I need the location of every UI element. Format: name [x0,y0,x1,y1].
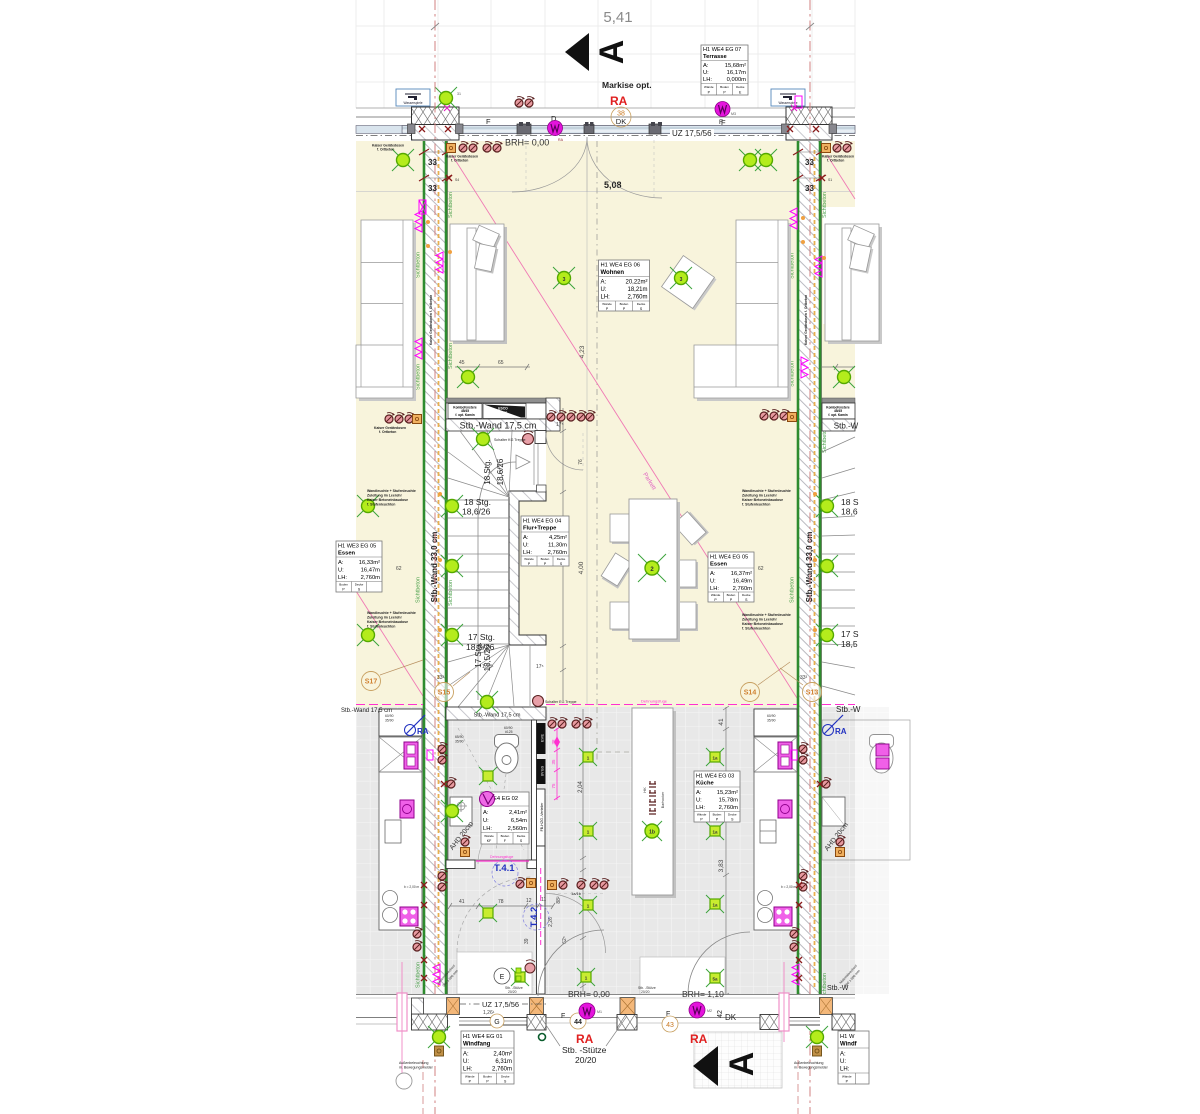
svg-text:Außenbeleuchtung: Außenbeleuchtung [794,1061,823,1065]
svg-text:Wandleuchte + Stufenleuchte: Wandleuchte + Stufenleuchte [742,613,791,617]
svg-text:Stb. -Stütze: Stb. -Stütze [562,1045,607,1055]
svg-text:Boden: Boden [713,813,722,817]
svg-text:20/20: 20/20 [641,990,650,994]
svg-text:Stb.-W: Stb.-W [834,422,859,431]
svg-text:Kaiser Betoneinbaudose: Kaiser Betoneinbaudose [367,498,408,502]
svg-text:Decke: Decke [501,1075,510,1079]
svg-text:G: G [494,1019,499,1026]
svg-text:Wandleuchte + Stufenleuchte: Wandleuchte + Stufenleuchte [742,489,791,493]
svg-text:45: 45 [459,360,465,366]
svg-text:H1 WE4 EG 04: H1 WE4 EG 04 [523,519,561,525]
svg-text:A:: A: [710,571,716,577]
svg-text:DK: DK [725,1013,737,1022]
svg-text:Sichtbeton: Sichtbeton [416,364,422,390]
svg-text:Sichtbeton: Sichtbeton [790,577,796,603]
svg-text:f. Stufenleuchten: f. Stufenleuchten [742,627,770,631]
svg-text:KF: KF [487,839,491,843]
svg-text:39: 39 [524,938,530,944]
svg-text:H1 WE3 EG 05: H1 WE3 EG 05 [338,544,376,550]
svg-text:Zuleitung im Leerohr: Zuleitung im Leerohr [742,618,777,622]
svg-text:2,760m: 2,760m [627,295,647,301]
svg-text:Stb.-W: Stb.-W [827,985,849,992]
svg-text:U:: U: [703,70,709,76]
svg-text:2,04: 2,04 [578,781,584,793]
svg-text:Schalter EG Treppe: Schalter EG Treppe [545,700,577,704]
svg-text:Sichtbeton: Sichtbeton [448,343,454,369]
svg-text:Decke: Decke [355,583,364,587]
svg-text:75: 75 [551,783,556,789]
svg-text:62: 62 [758,566,764,572]
svg-text:2,560m: 2,560m [508,826,528,832]
svg-text:33³: 33³ [800,675,808,681]
svg-text:Wände: Wände [465,1075,475,1079]
svg-text:2,760m: 2,760m [548,550,568,556]
svg-text:U:: U: [338,568,344,574]
svg-text:17 Stg.: 17 Stg. [468,632,495,642]
svg-text:U:: U: [463,1059,469,1065]
svg-text:1b: 1b [649,830,655,836]
svg-text:A:: A: [703,63,709,69]
svg-text:15,68m²: 15,68m² [725,63,746,69]
svg-text:Dehnungsfuge: Dehnungsfuge [490,855,513,859]
svg-text:Decke: Decke [736,85,745,89]
svg-text:2,760m: 2,760m [719,805,739,811]
svg-text:Windf: Windf [840,1042,858,1048]
svg-text:U:: U: [840,1059,846,1065]
svg-text:A: A [723,1052,761,1077]
svg-text:Decke: Decke [742,593,751,597]
svg-text:16,49m: 16,49m [733,579,753,585]
svg-text:18 S: 18 S [841,497,859,507]
svg-text:Boden: Boden [483,1075,492,1079]
svg-text:H1 WE4 EG 03: H1 WE4 EG 03 [696,774,734,780]
svg-text:Kaiser Gerätedosen f. Ortbeton: Kaiser Gerätedosen f. Ortbeton [429,295,433,345]
svg-text:m. Bewegungsmelder: m. Bewegungsmelder [399,1066,434,1070]
svg-text:16,47m: 16,47m [361,568,381,574]
svg-text:BRH= 0,00: BRH= 0,00 [568,989,610,999]
svg-text:Boden: Boden [720,85,729,89]
svg-text:2,26: 2,26 [548,917,554,927]
svg-text:18 Stg.: 18 Stg. [483,459,492,484]
svg-text:31: 31 [457,92,461,96]
svg-text:38: 38 [551,739,556,745]
svg-text:HK: HK [642,787,647,793]
svg-text:65: 65 [498,360,504,366]
svg-text:Wände: Wände [484,834,494,838]
svg-text:T.4.1: T.4.1 [494,863,515,874]
svg-text:Kaiser Gerätedosen f. Ortbeton: Kaiser Gerätedosen f. Ortbeton [804,295,808,345]
svg-text:A:: A: [483,810,489,816]
svg-text:0,000m: 0,000m [727,77,747,83]
svg-text:U:: U: [601,287,607,293]
svg-text:16,37m²: 16,37m² [731,571,752,577]
svg-text:LH:: LH: [696,805,705,811]
svg-text:88²: 88² [556,896,562,904]
svg-text:18,6/26: 18,6/26 [496,458,505,485]
svg-text:Essen: Essen [710,562,728,568]
svg-text:S14: S14 [744,690,757,697]
svg-text:11⁭: 11⁭ [541,897,546,903]
svg-text:Barhocker: Barhocker [661,791,665,808]
svg-text:Schalter KG Treppe: Schalter KG Treppe [494,438,526,442]
svg-text:43: 43 [666,1022,674,1029]
svg-text:2,40m²: 2,40m² [493,1052,512,1058]
svg-text:H1 WE4 EG 06: H1 WE4 EG 06 [601,263,641,269]
svg-text:M1: M1 [597,1010,602,1014]
svg-text:18,5: 18,5 [841,639,858,649]
svg-text:RA: RA [558,138,564,142]
svg-text:44: 44 [574,1019,582,1026]
svg-text:18,6/26: 18,6/26 [462,507,491,517]
svg-text:U:: U: [483,818,489,824]
svg-text:62: 62 [396,566,402,572]
svg-text:20/20: 20/20 [508,990,517,994]
svg-text:60/90: 60/90 [385,714,394,718]
svg-text:33: 33 [805,184,814,193]
svg-text:2,41m²: 2,41m² [509,810,527,816]
svg-text:1a: 1a [712,903,718,908]
svg-text:Sichtbeton: Sichtbeton [822,192,828,218]
svg-text:#125: #125 [505,730,513,734]
svg-text:FB-HZG.-Verteiler: FB-HZG.-Verteiler [540,802,544,832]
svg-text:U:: U: [710,579,716,585]
svg-text:H1 WE4 EG 01: H1 WE4 EG 01 [463,1034,503,1040]
svg-text:LH:: LH: [338,575,347,581]
svg-text:U:: U: [523,543,529,549]
svg-text:F: F [504,839,506,843]
svg-text:Markise opt.: Markise opt. [602,80,652,90]
svg-text:Wände: Wände [602,302,612,306]
svg-text:3: 3 [563,277,566,283]
svg-text:78: 78 [498,899,504,905]
svg-text:Dehnungsfuge: Dehnungsfuge [641,699,668,704]
svg-text:E: E [500,974,505,981]
svg-text:U:: U: [696,798,702,804]
svg-text:S1: S1 [828,178,832,182]
svg-text:LH:: LH: [483,826,492,832]
svg-text:f. Ortbeton: f. Ortbeton [379,430,396,434]
svg-text:Sichtbeton: Sichtbeton [448,580,454,606]
svg-text:H1 WE4 EG 05: H1 WE4 EG 05 [710,555,748,561]
svg-text:33³: 33³ [437,675,445,681]
svg-text:T.4.2: T.4.2 [529,907,540,928]
svg-text:17⁵: 17⁵ [556,422,564,428]
svg-text:6,54m: 6,54m [511,818,527,824]
svg-text:Zuleitung im Leerohr: Zuleitung im Leerohr [367,616,402,620]
svg-text:RA: RA [576,1032,594,1046]
svg-text:4,25m²: 4,25m² [549,535,567,541]
svg-text:S15: S15 [438,690,451,697]
svg-text:Wasserspiele: Wasserspiele [403,101,422,105]
svg-text:A:: A: [696,790,702,796]
svg-text:S17: S17 [365,679,378,686]
svg-text:18,5/26: 18,5/26 [483,644,492,671]
svg-text:F: F [561,1013,565,1020]
svg-text:A:: A: [338,560,344,566]
svg-text:LH:: LH: [523,550,532,556]
svg-text:35/90: 35/90 [455,740,464,744]
svg-text:H1 W: H1 W [840,1034,855,1040]
svg-text:Wände: Wände [711,593,721,597]
svg-text:UZ 17,5/56: UZ 17,5/56 [482,1000,519,1009]
svg-text:LH:: LH: [710,586,719,592]
svg-text:f. Stufenleuchten: f. Stufenleuchten [367,625,395,629]
svg-text:17 S: 17 S [841,629,859,639]
svg-text:Wände: Wände [524,557,534,561]
svg-text:b = 2,00 m: b = 2,00 m [404,885,419,889]
svg-text:16,33m²: 16,33m² [359,560,380,566]
svg-text:BRH= 0,00: BRH= 0,00 [505,138,549,148]
svg-text:Zuleitung im Leerohr: Zuleitung im Leerohr [367,494,402,498]
svg-text:76: 76 [578,459,584,465]
svg-text:UZ 17,5/56: UZ 17,5/56 [672,129,712,138]
svg-text:41: 41 [718,718,725,726]
svg-text:LH:: LH: [463,1067,473,1073]
svg-text:E4 EG 02: E4 EG 02 [493,796,518,802]
svg-text:Außenbeleuchtung: Außenbeleuchtung [399,1061,428,1065]
svg-text:Stb.-Wand 17,5 cm: Stb.-Wand 17,5 cm [341,708,392,714]
svg-text:15,78m: 15,78m [719,798,739,804]
svg-text:Kaiser Betoneinbaudose: Kaiser Betoneinbaudose [742,498,783,502]
svg-text:Sichtbeton: Sichtbeton [448,192,454,218]
svg-text:LH:: LH: [840,1067,850,1073]
svg-text:5a: 5a [712,977,718,982]
svg-text:Decke: Decke [517,834,526,838]
svg-text:3,83: 3,83 [718,859,725,872]
svg-text:11,30m: 11,30m [548,543,567,549]
svg-text:35: 35 [551,759,556,765]
svg-text:41: 41 [459,899,465,905]
svg-text:Sichtbeton: Sichtbeton [416,577,422,603]
svg-text:20,22m²: 20,22m² [625,280,647,286]
svg-text:f. Stufenleuchten: f. Stufenleuchten [742,503,770,507]
svg-text:Kaiser Betoneinbaudose: Kaiser Betoneinbaudose [742,622,783,626]
svg-text:18,21m: 18,21m [627,287,647,293]
svg-text:f. opt. Kamin: f. opt. Kamin [828,413,847,417]
svg-text:Boden: Boden [727,593,736,597]
svg-text:Flur+Treppe: Flur+Treppe [523,526,557,532]
svg-text:33: 33 [428,184,437,193]
svg-text:b = 2,00 m: b = 2,00 m [781,885,796,889]
svg-text:Sichtbeton: Sichtbeton [416,252,422,278]
svg-text:18,6: 18,6 [841,507,858,517]
svg-text:f. Ortbeton: f. Ortbeton [451,159,468,163]
svg-text:Stb.-W: Stb.-W [836,705,861,714]
svg-text:Boden: Boden [620,302,629,306]
svg-text:RA: RA [835,727,847,736]
svg-text:16,17m: 16,17m [727,70,747,76]
svg-text:A:: A: [840,1052,846,1058]
svg-text:RA: RA [417,727,429,736]
svg-text:Windfang: Windfang [463,1042,491,1048]
svg-text:Terrasse: Terrasse [703,54,728,60]
svg-text:f. Ortbeton: f. Ortbeton [377,148,394,152]
svg-text:LH:: LH: [703,77,712,83]
svg-text:Wände: Wände [697,813,707,817]
svg-text:Küche: Küche [696,781,714,787]
svg-text:Boden: Boden [541,557,550,561]
svg-text:Kaiser Betoneinbaudose: Kaiser Betoneinbaudose [367,620,408,624]
svg-text:LH:: LH: [601,295,611,301]
svg-text:Stb.-Wand 17,5 cm: Stb.-Wand 17,5 cm [474,713,521,719]
svg-text:f. Stufenleuchten: f. Stufenleuchten [367,503,395,507]
svg-text:H1 WE4 EG 07: H1 WE4 EG 07 [703,47,741,53]
svg-text:EVE: EVE [540,734,545,742]
svg-text:m. Bewegungsmelder: m. Bewegungsmelder [794,1066,829,1070]
svg-text:A: A [593,40,631,65]
svg-text:RA: RA [610,94,628,108]
svg-text:S13: S13 [806,690,819,697]
svg-text:1a: 1a [712,756,718,761]
svg-text:35/90: 35/90 [767,719,776,723]
svg-text:Zuleitung im Leerohr: Zuleitung im Leerohr [742,494,777,498]
svg-text:A:: A: [523,535,529,541]
svg-text:18 Stg.: 18 Stg. [464,497,491,507]
svg-text:M2: M2 [707,1009,712,1013]
svg-text:42: 42 [717,1010,724,1018]
svg-text:20/20: 20/20 [575,1055,597,1065]
svg-text:35/90: 35/90 [385,719,394,723]
svg-text:12⁭: 12⁭ [526,898,532,904]
svg-text:4,23: 4,23 [579,345,586,358]
svg-text:60/90: 60/90 [767,714,776,718]
svg-text:15,23m²: 15,23m² [717,790,738,796]
svg-text:33: 33 [428,158,437,167]
svg-text:Stb.-Wand 17,5 cm: Stb.-Wand 17,5 cm [460,421,537,431]
svg-text:A:: A: [601,280,607,286]
svg-text:Wände: Wände [704,85,714,89]
svg-text:17⁵: 17⁵ [536,664,544,670]
svg-text:17 Stg.: 17 Stg. [474,642,483,667]
svg-text:Boden: Boden [501,834,510,838]
svg-text:1a: 1a [712,830,718,835]
svg-text:33: 33 [805,158,814,167]
svg-text:ESCO: ESCO [498,407,508,411]
svg-text:f. Ortbeton: f. Ortbeton [827,159,844,163]
svg-text:F: F [486,117,491,126]
svg-text:M3: M3 [731,112,736,116]
svg-text:A:: A: [463,1052,469,1058]
svg-text:Essen: Essen [338,551,356,557]
svg-text:UV EG: UV EG [541,765,545,776]
svg-text:2,760m: 2,760m [733,586,753,592]
svg-text:Sichtbeton: Sichtbeton [416,962,422,988]
svg-text:26/50: 26/50 [499,411,508,415]
svg-text:1a/1b: 1a/1b [571,891,582,896]
svg-text:6,31m: 6,31m [495,1059,512,1065]
svg-text:Wandleuchte + Stufenleuchte: Wandleuchte + Stufenleuchte [367,489,416,493]
svg-text:Decke: Decke [557,557,566,561]
svg-text:4,00: 4,00 [578,561,585,574]
svg-text:S4: S4 [455,178,459,182]
svg-text:2,760m: 2,760m [361,575,381,581]
svg-text:DK: DK [616,117,626,126]
svg-text:Boden: Boden [339,583,348,587]
svg-text:5,08: 5,08 [604,180,622,190]
svg-text:Decke: Decke [728,813,737,817]
svg-text:RA: RA [690,1032,708,1046]
svg-text:Decke: Decke [637,302,646,306]
svg-text:5,41: 5,41 [603,9,632,26]
svg-text:3: 3 [680,277,683,283]
svg-text:Wohnen: Wohnen [601,270,625,276]
svg-text:Wände: Wände [842,1075,852,1079]
svg-text:2,760m: 2,760m [492,1067,512,1073]
svg-text:Wandleuchte + Stufenleuchte: Wandleuchte + Stufenleuchte [367,611,416,615]
svg-text:f. opt. Kamin: f. opt. Kamin [455,413,474,417]
svg-text:F: F [719,119,723,126]
